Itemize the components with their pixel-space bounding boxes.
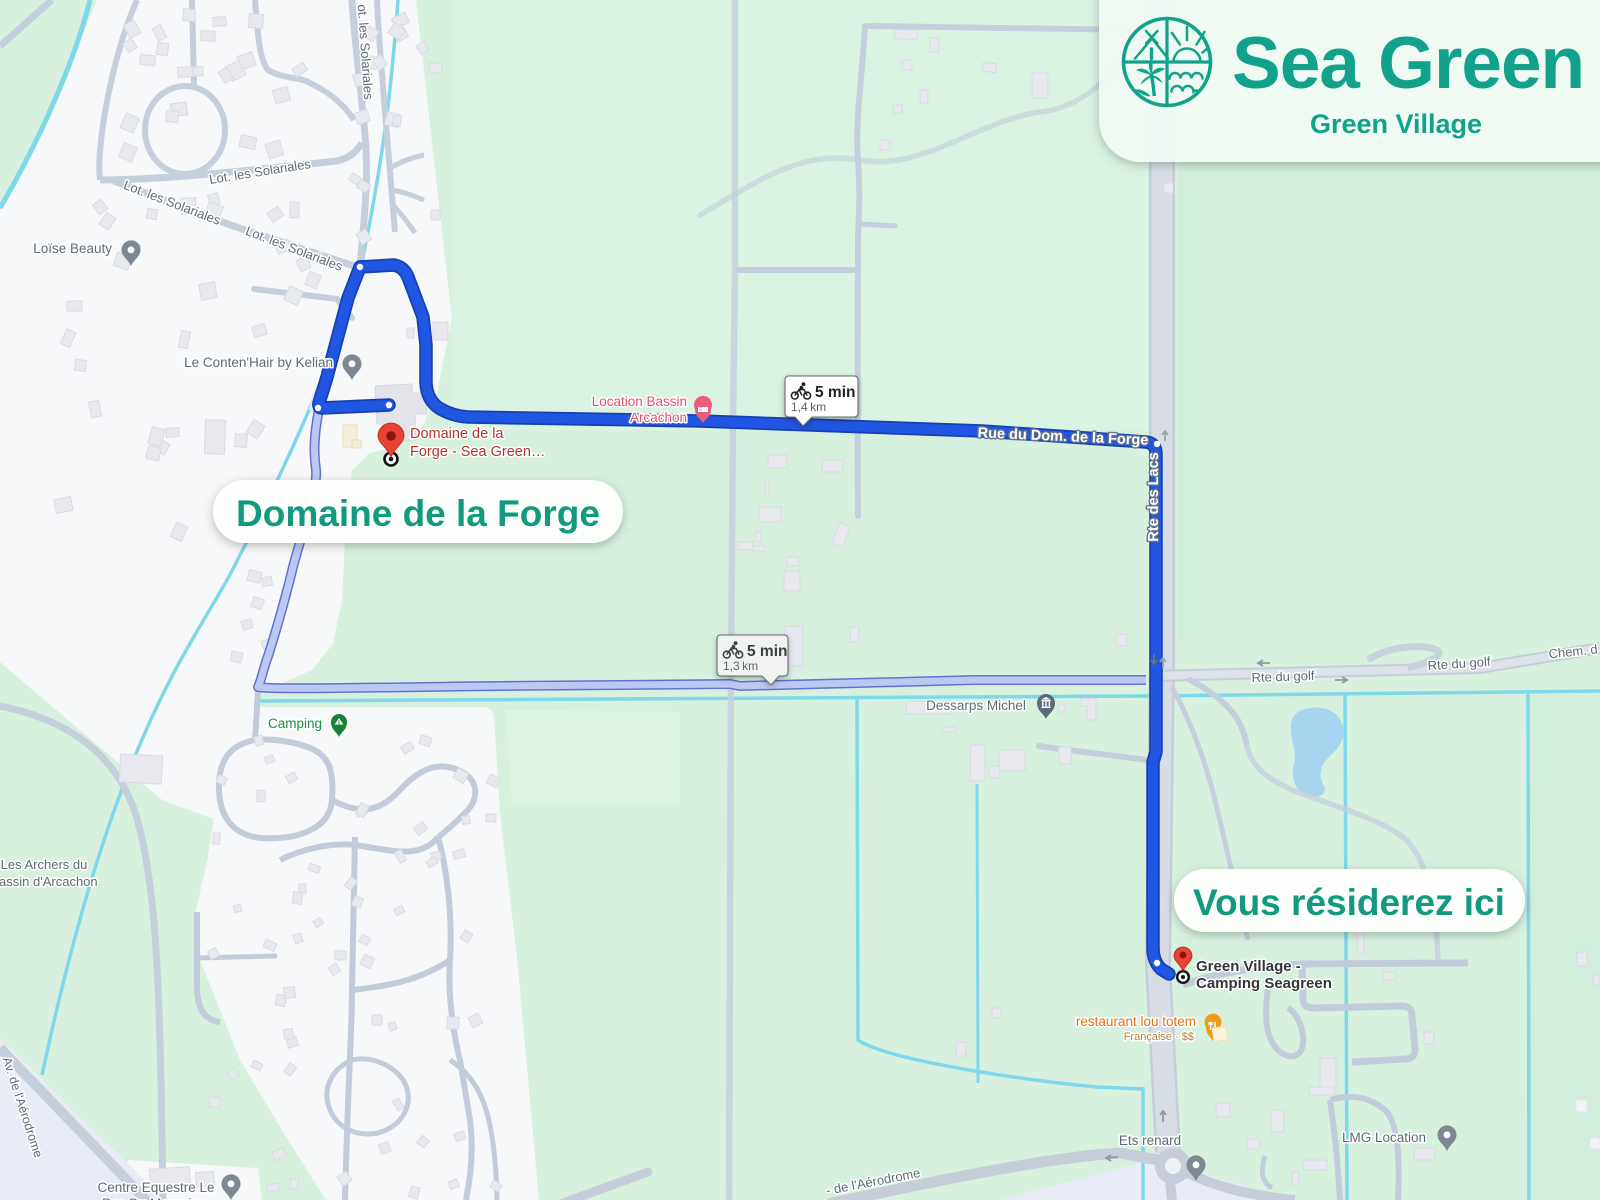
svg-text:Camping: Camping (268, 716, 322, 731)
svg-text:1,4 km: 1,4 km (791, 400, 826, 414)
svg-text:Green Village -: Green Village - (1196, 958, 1301, 975)
svg-text:Forge - Sea Green…: Forge - Sea Green… (410, 444, 545, 460)
svg-text:Les Archers du: Les Archers du (1, 857, 88, 872)
svg-text:Vous résiderez ici: Vous résiderez ici (1193, 882, 1505, 923)
svg-text:Location Bassin: Location Bassin (592, 394, 687, 409)
svg-text:Poc Du Marquis: Poc Du Marquis (102, 1196, 198, 1200)
svg-text:Sea Green: Sea Green (1232, 23, 1584, 104)
svg-text:restaurant lou totem: restaurant lou totem (1076, 1014, 1196, 1029)
svg-text:Camping Seagreen: Camping Seagreen (1196, 975, 1332, 992)
svg-text:1,3 km: 1,3 km (723, 659, 758, 673)
svg-text:LMG Location: LMG Location (1342, 1130, 1426, 1145)
svg-text:Arcachon: Arcachon (630, 410, 687, 425)
svg-text:Rte des Lacs: Rte des Lacs (1146, 452, 1162, 541)
svg-text:Le Conten'Hair by Kelian: Le Conten'Hair by Kelian (184, 355, 333, 370)
svg-text:Ets renard: Ets renard (1119, 1133, 1181, 1148)
svg-text:Centre Equestre Le: Centre Equestre Le (97, 1180, 214, 1195)
svg-text:5 min: 5 min (815, 384, 855, 401)
svg-text:Domaine de la: Domaine de la (410, 426, 504, 442)
svg-text:Loïse Beauty: Loïse Beauty (33, 241, 112, 256)
svg-text:5 min: 5 min (747, 643, 787, 660)
svg-text:Française · $$: Française · $$ (1124, 1031, 1194, 1043)
svg-text:Bassin d'Arcachon: Bassin d'Arcachon (0, 874, 98, 889)
svg-text:Rte du golf: Rte du golf (1251, 668, 1315, 685)
svg-text:Domaine de la Forge: Domaine de la Forge (236, 493, 600, 534)
svg-text:Green Village: Green Village (1310, 109, 1482, 139)
svg-text:Dessarps Michel: Dessarps Michel (926, 698, 1026, 713)
